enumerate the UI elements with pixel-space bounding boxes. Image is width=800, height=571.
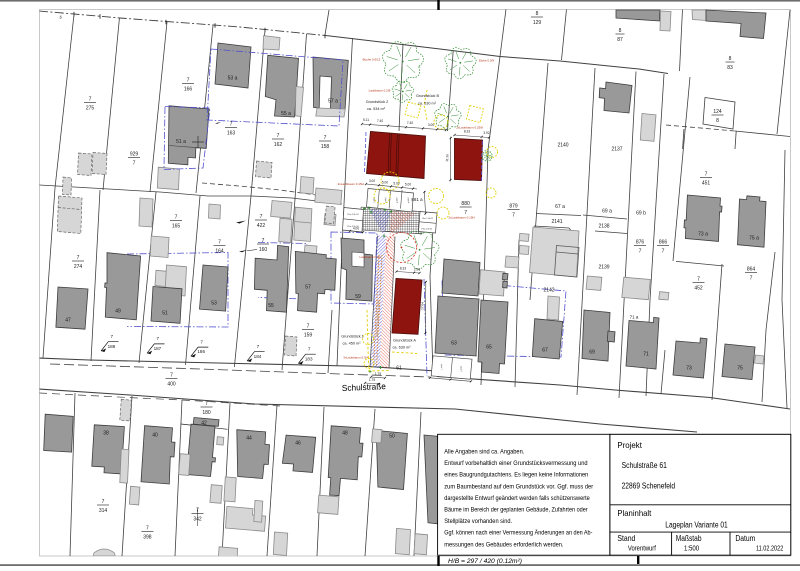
svg-text:184: 184 (254, 354, 262, 359)
svg-text:7: 7 (170, 373, 173, 379)
svg-text:50: 50 (389, 434, 395, 440)
svg-text:51 a: 51 a (176, 139, 186, 145)
svg-text:158: 158 (321, 144, 330, 150)
svg-text:65: 65 (486, 345, 492, 351)
svg-text:2xLaubbaum 0.15H: 2xLaubbaum 0.15H (449, 216, 475, 220)
svg-text:46: 46 (295, 441, 301, 447)
svg-text:7: 7 (146, 526, 149, 532)
svg-text:180: 180 (202, 410, 211, 416)
svg-text:7.40: 7.40 (407, 121, 413, 125)
svg-text:11.36: 11.36 (445, 154, 449, 162)
svg-text:2142: 2142 (543, 288, 554, 294)
svg-text:2141: 2141 (551, 219, 562, 225)
svg-text:186: 186 (197, 349, 205, 354)
svg-text:69 a: 69 a (602, 209, 612, 215)
svg-text:Ggf. können nach einer Vermess: Ggf. können nach einer Vermessung Änderu… (444, 530, 592, 537)
svg-text:2138: 2138 (598, 224, 609, 230)
svg-text:Pkw 2 Nr.61: Pkw 2 Nr.61 (422, 229, 434, 231)
svg-text:H/B = 297 / 420 (0.12m²): H/B = 297 / 420 (0.12m²) (448, 558, 522, 565)
svg-text:7: 7 (697, 277, 700, 283)
svg-text:Datum: Datum (735, 534, 755, 543)
svg-text:17.04: 17.04 (420, 302, 424, 310)
svg-text:7: 7 (307, 324, 310, 330)
svg-text:75: 75 (737, 366, 743, 372)
svg-text:69 b: 69 b (636, 211, 646, 217)
svg-text:7: 7 (133, 161, 136, 167)
svg-text:160: 160 (259, 247, 268, 253)
svg-text:75 a: 75 a (749, 236, 759, 242)
svg-text:7: 7 (277, 133, 280, 139)
svg-text:7: 7 (230, 122, 233, 128)
svg-text:4.00: 4.00 (353, 227, 359, 231)
svg-text:Eiche 0.3/9: Eiche 0.3/9 (479, 59, 494, 63)
svg-text:63: 63 (451, 341, 457, 347)
svg-text:87: 87 (617, 37, 623, 43)
svg-text:57: 57 (305, 285, 311, 291)
svg-text:314: 314 (99, 508, 108, 514)
svg-text:3.00: 3.00 (428, 123, 434, 127)
svg-text:7: 7 (639, 249, 642, 255)
svg-text:73: 73 (686, 366, 692, 372)
svg-text:3.92: 3.92 (483, 131, 489, 135)
svg-text:2.96: 2.96 (414, 268, 420, 272)
svg-text:55 a: 55 a (281, 111, 291, 117)
svg-text:Bäume im Bereich der geplanten: Bäume im Bereich der geplanten Gebäude, … (444, 507, 587, 514)
svg-text:69: 69 (589, 350, 595, 356)
svg-text:7: 7 (464, 210, 467, 216)
svg-text:162: 162 (274, 142, 283, 148)
svg-text:2xLaubbaum 0.25/8: 2xLaubbaum 0.25/8 (456, 126, 483, 130)
svg-text:7: 7 (200, 339, 203, 344)
svg-text:zum Baumbestand auf dem Grunds: zum Baumbestand auf dem Grundstück vor. … (444, 483, 593, 490)
svg-text:183: 183 (305, 356, 313, 361)
svg-text:48: 48 (342, 431, 348, 437)
svg-text:ca. 534 m²: ca. 534 m² (367, 107, 386, 111)
svg-text:40: 40 (152, 433, 158, 439)
svg-text:452: 452 (694, 286, 703, 292)
svg-text:5.00: 5.00 (393, 181, 399, 185)
svg-text:Pkw 1 Nr.61: Pkw 1 Nr.61 (422, 218, 434, 220)
svg-text:7: 7 (705, 172, 708, 178)
svg-text:49: 49 (115, 309, 121, 315)
svg-text:5.11: 5.11 (363, 118, 369, 122)
svg-text:Alle Angaben sind ca. Angaben.: Alle Angaben sind ca. Angaben. (444, 448, 524, 455)
svg-text:398: 398 (143, 534, 152, 540)
svg-text:dargestellte Entwurf geändert: dargestellte Entwurf geändert werden fal… (444, 495, 590, 502)
svg-text:Vorentwurf: Vorentwurf (628, 545, 656, 552)
svg-text:188: 188 (108, 344, 116, 349)
svg-text:165: 165 (172, 224, 181, 230)
svg-text:Entwurf vorbehaltlich einer Gr: Entwurf vorbehaltlich einer Grundstücksv… (444, 460, 588, 467)
svg-text:7: 7 (260, 214, 263, 220)
svg-text:Lageplan Variante 01: Lageplan Variante 01 (665, 521, 728, 530)
svg-text:2139: 2139 (598, 265, 609, 271)
svg-text:7: 7 (102, 499, 105, 505)
svg-text:42: 42 (201, 421, 207, 427)
svg-text:51: 51 (162, 311, 168, 317)
svg-text:ca. 530 m²: ca. 530 m² (418, 101, 437, 105)
svg-text:47: 47 (65, 318, 71, 324)
svg-text:7: 7 (750, 276, 753, 282)
svg-text:67 a: 67 a (555, 204, 565, 210)
svg-text:8.33: 8.33 (400, 267, 406, 271)
svg-text:messungen des Gebäudes erforde: messungen des Gebäudes erforderlich werd… (444, 541, 563, 548)
svg-text:Grundstück B: Grundstück B (416, 94, 439, 98)
svg-text:5.00: 5.00 (382, 180, 388, 184)
svg-text:2140: 2140 (557, 143, 568, 149)
svg-text:7: 7 (262, 238, 265, 244)
svg-text:7: 7 (111, 334, 114, 339)
svg-text:Maßstab: Maßstab (676, 534, 702, 543)
svg-text:275: 275 (86, 106, 95, 112)
svg-text:38: 38 (103, 431, 109, 437)
svg-text:53 a: 53 a (228, 76, 238, 82)
svg-text:7: 7 (662, 249, 665, 255)
svg-text:22869 Schenefeld: 22869 Schenefeld (622, 481, 676, 490)
svg-text:163: 163 (227, 131, 236, 137)
svg-text:864: 864 (747, 267, 756, 273)
svg-text:8.33: 8.33 (464, 130, 470, 134)
svg-text:7.40: 7.40 (377, 119, 383, 123)
svg-text:881 a: 881 a (411, 197, 423, 202)
svg-text:1:500: 1:500 (684, 545, 699, 552)
svg-text:7: 7 (257, 344, 260, 349)
svg-text:67: 67 (542, 348, 548, 354)
svg-text:Buche 0.6/13: Buche 0.6/13 (363, 58, 381, 62)
svg-text:3xLaubbaum 0.3H: 3xLaubbaum 0.3H (343, 355, 368, 359)
svg-text:ca. 450 m²: ca. 450 m² (343, 342, 362, 346)
svg-text:159: 159 (304, 333, 313, 339)
svg-text:7: 7 (89, 97, 92, 103)
svg-text:8: 8 (729, 56, 732, 62)
svg-text:73 a: 73 a (698, 232, 708, 238)
svg-text:61: 61 (396, 366, 402, 372)
svg-text:Schulstraße: Schulstraße (342, 381, 387, 393)
svg-text:3.00: 3.00 (369, 179, 375, 183)
svg-text:129: 129 (533, 20, 542, 26)
svg-text:Grundstück 2: Grundstück 2 (366, 100, 389, 104)
svg-text:7: 7 (205, 401, 208, 407)
svg-text:ca. 630 m²: ca. 630 m² (393, 346, 412, 350)
svg-text:eines Baugrundgutachtens. Es l: eines Baugrundgutachtens. Es liegen kein… (444, 472, 589, 479)
svg-text:7: 7 (308, 347, 311, 352)
svg-text:Stand: Stand (617, 534, 635, 543)
svg-text:7: 7 (175, 215, 178, 221)
svg-text:274: 274 (74, 264, 83, 270)
svg-text:59: 59 (355, 294, 361, 300)
svg-text:Planinhalt: Planinhalt (617, 508, 652, 518)
svg-text:1.75: 1.75 (375, 372, 381, 376)
svg-text:Schulstraße 61: Schulstraße 61 (622, 461, 668, 470)
svg-text:2xLaubbaum 0.15H: 2xLaubbaum 0.15H (338, 182, 364, 186)
svg-text:166: 166 (184, 87, 193, 93)
svg-text:55: 55 (268, 303, 274, 309)
svg-text:879: 879 (509, 204, 518, 210)
svg-text:929: 929 (130, 152, 139, 158)
svg-text:44: 44 (246, 436, 252, 442)
svg-text:7: 7 (77, 255, 80, 261)
svg-text:11.02.2022: 11.02.2022 (756, 545, 783, 552)
svg-text:83: 83 (727, 65, 733, 71)
svg-text:Projekt: Projekt (617, 440, 642, 450)
svg-text:7: 7 (512, 213, 515, 219)
svg-text:71: 71 (643, 352, 649, 358)
svg-text:7: 7 (187, 78, 190, 84)
svg-text:8: 8 (619, 28, 622, 34)
svg-text:Laubbaum 0.2/8: Laubbaum 0.2/8 (369, 89, 391, 93)
svg-text:866: 866 (659, 240, 668, 246)
svg-text:422: 422 (257, 223, 266, 229)
svg-text:880: 880 (461, 201, 470, 207)
svg-text:5.00: 5.00 (405, 183, 411, 187)
svg-text:8: 8 (716, 118, 719, 124)
svg-text:187: 187 (154, 346, 162, 351)
svg-text:Pkw 1 Nr.59: Pkw 1 Nr.59 (347, 213, 359, 216)
svg-text:57 a: 57 a (328, 99, 338, 105)
svg-text:7: 7 (157, 336, 160, 341)
svg-text:Grundstück 1: Grundstück 1 (341, 335, 364, 339)
svg-text:53: 53 (211, 301, 217, 307)
svg-text:124: 124 (713, 109, 722, 115)
svg-text:7: 7 (218, 240, 221, 246)
svg-text:451: 451 (702, 181, 711, 187)
svg-text:8: 8 (536, 11, 539, 17)
svg-text:2137: 2137 (611, 147, 622, 153)
svg-text:Grundstück A: Grundstück A (393, 339, 416, 343)
svg-text:7: 7 (324, 135, 327, 141)
svg-text:164: 164 (215, 249, 224, 255)
svg-text:876: 876 (636, 240, 645, 246)
svg-text:Laubbaum 0.3H: Laubbaum 0.3H (360, 255, 381, 259)
svg-text:Stellplätze vorhanden sind.: Stellplätze vorhanden sind. (444, 518, 512, 525)
svg-text:71 a: 71 a (630, 315, 639, 320)
svg-text:400: 400 (167, 382, 176, 388)
